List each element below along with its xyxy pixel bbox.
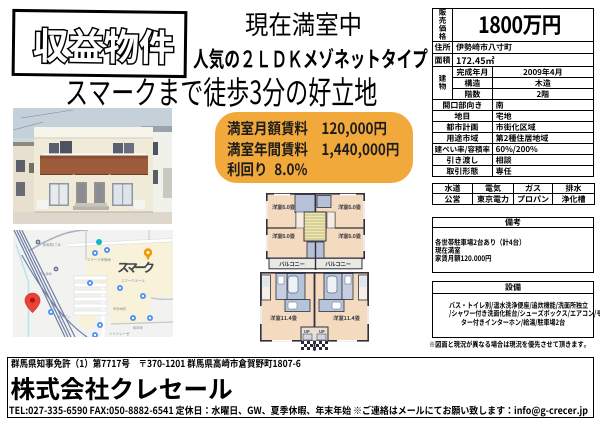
svg-text:洋室6.0畳: 洋室6.0畳 — [338, 232, 362, 240]
svg-text:ガーデン: ガーデン — [57, 314, 71, 319]
svg-text:洋室11.4畳: 洋室11.4畳 — [333, 314, 361, 322]
svg-text:市立高崎: 市立高崎 — [39, 271, 53, 276]
svg-text:バルコニー: バルコニー — [325, 260, 351, 268]
svg-text:洋室6.0畳: 洋室6.0畳 — [272, 203, 296, 211]
svg-text:シャトレーゼ: シャトレーゼ — [109, 331, 130, 336]
svg-text:伊勢崎西: 伊勢崎西 — [113, 306, 126, 311]
svg-text:駐車場: 駐車場 — [133, 325, 143, 330]
svg-text:スマーク伊勢崎: スマーク伊勢崎 — [87, 257, 111, 262]
svg-text:洋室11.4畳: 洋室11.4畳 — [270, 314, 298, 322]
svg-text:スマークホール: スマークホール — [121, 278, 145, 283]
svg-text:洋室6.0畳: 洋室6.0畳 — [338, 203, 362, 211]
svg-text:スマーク: スマーク — [117, 257, 155, 276]
svg-text:新高尾4丁目: 新高尾4丁目 — [43, 242, 61, 247]
svg-text:洋室6.0畳: 洋室6.0畳 — [272, 232, 296, 240]
svg-text:バルコニー: バルコニー — [279, 260, 305, 268]
